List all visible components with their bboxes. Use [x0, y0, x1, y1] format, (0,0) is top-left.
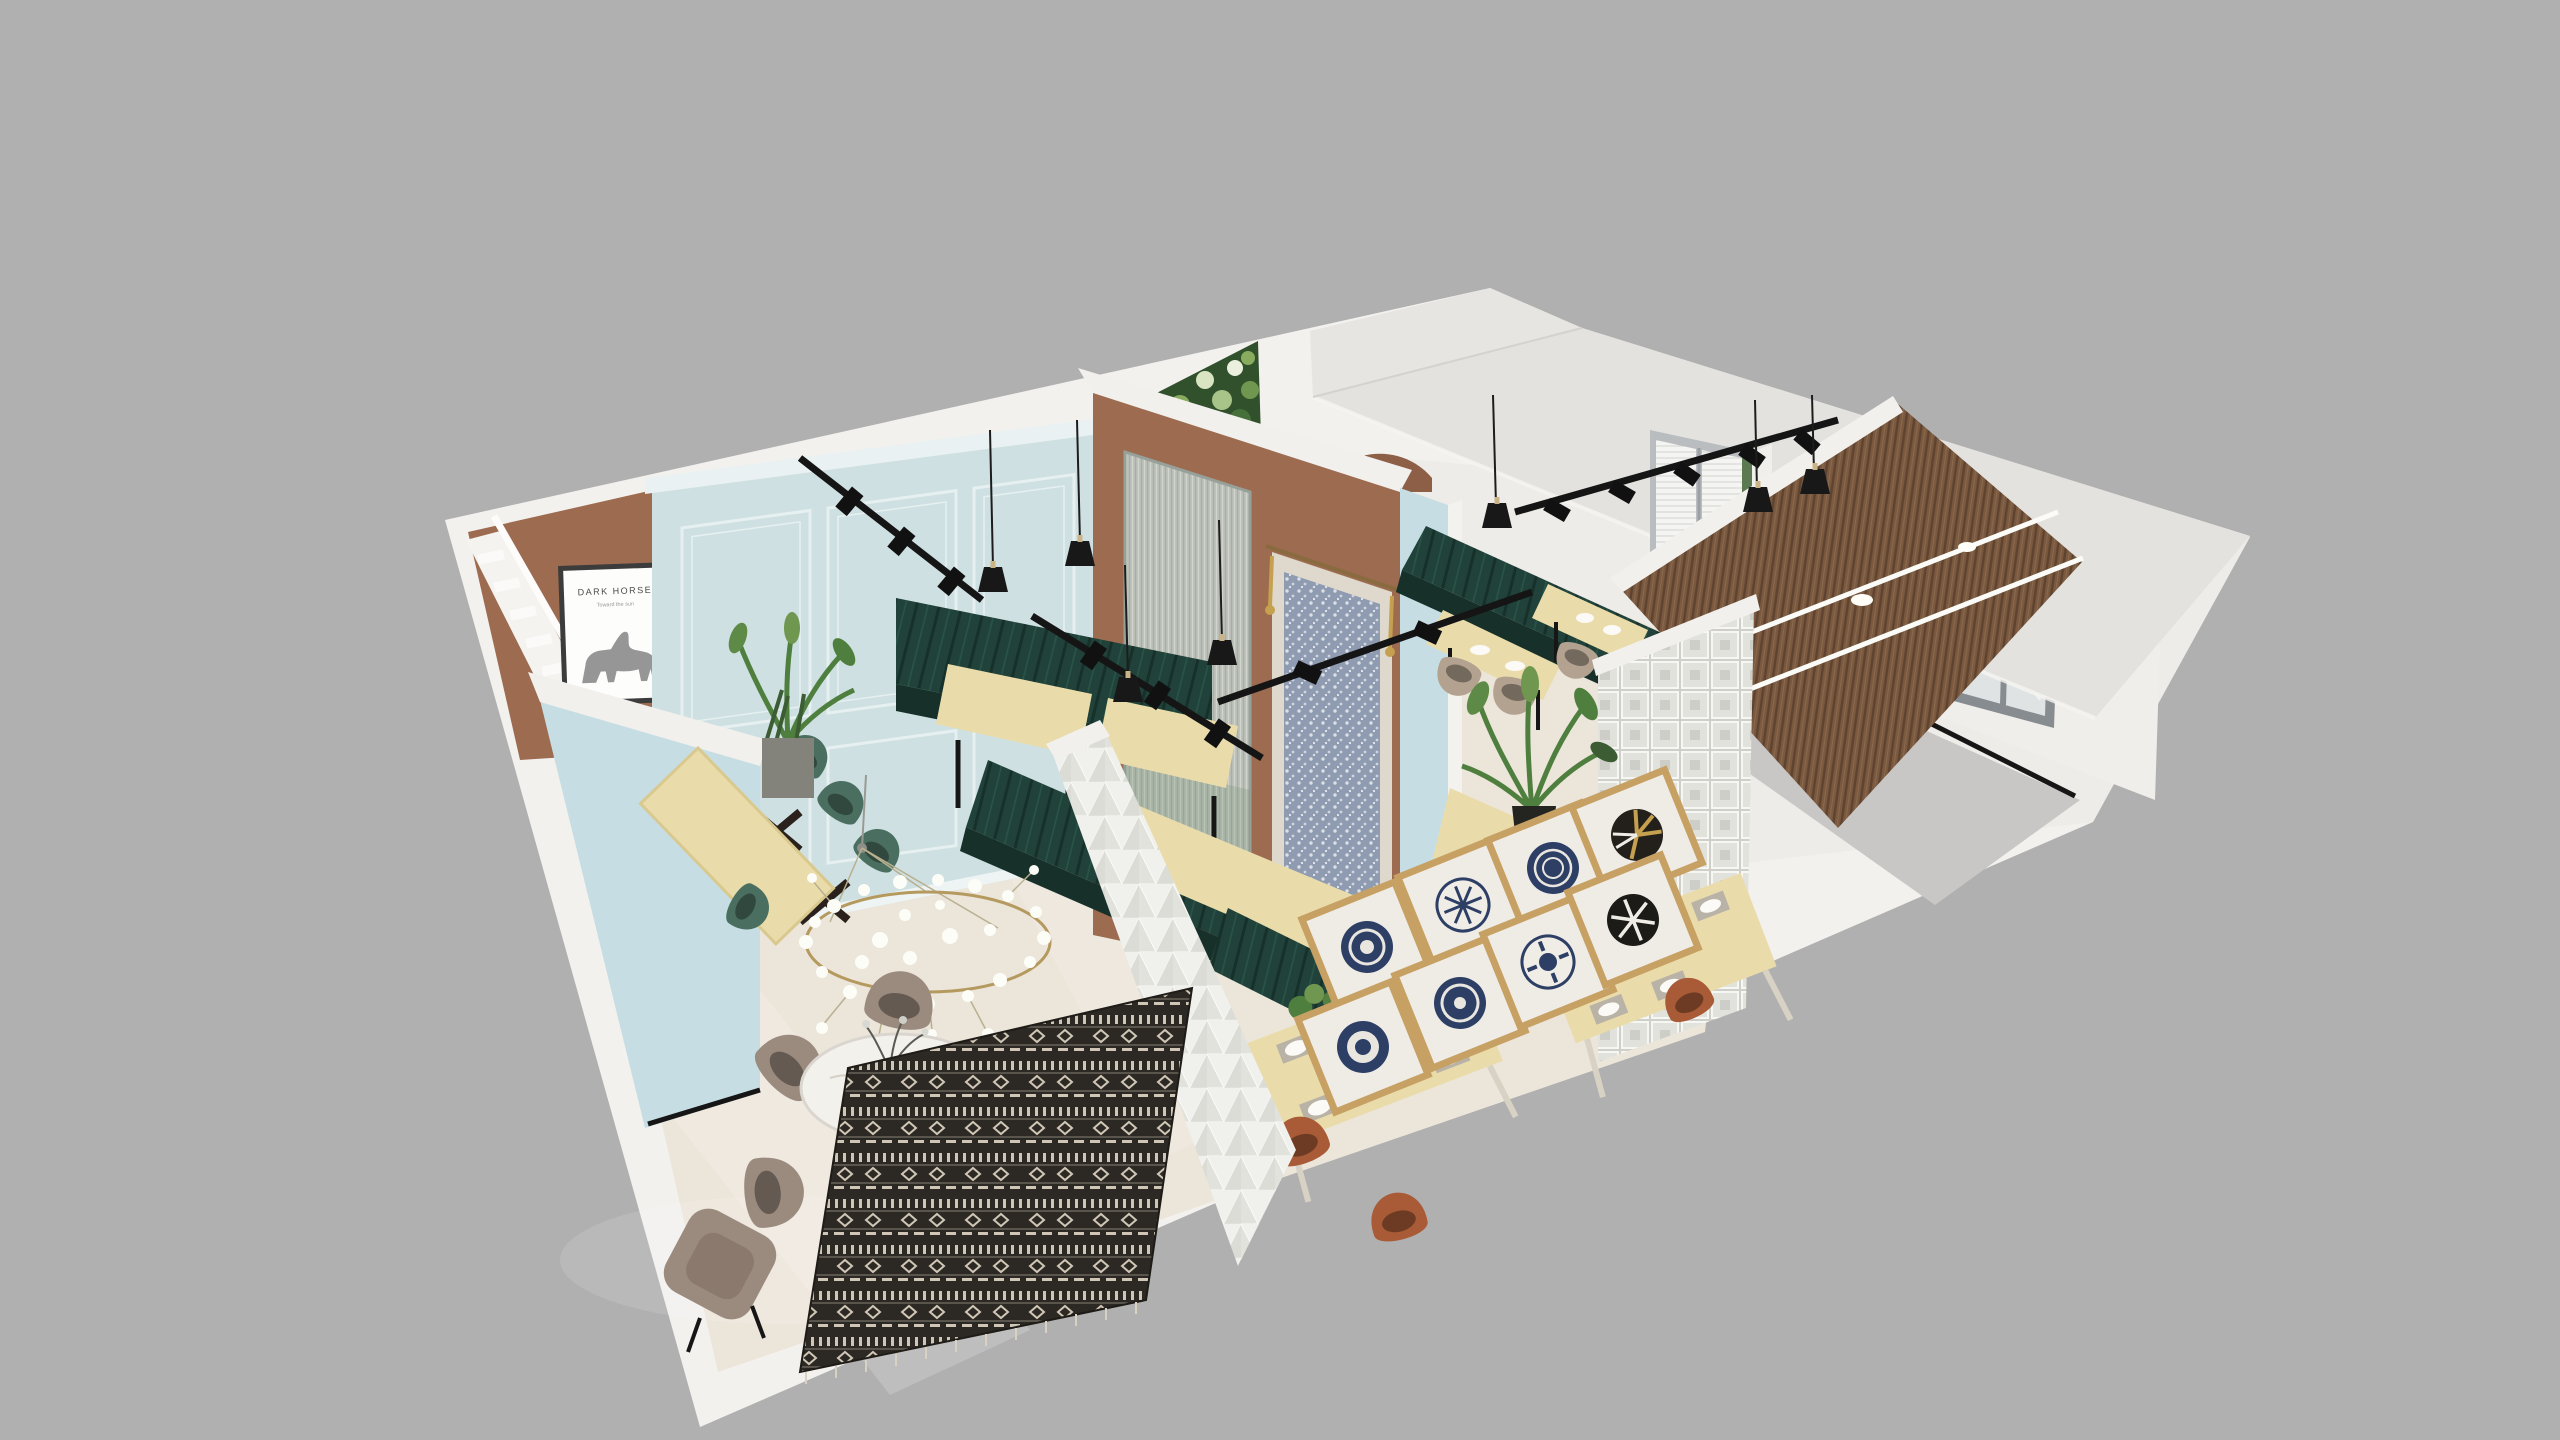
- isometric-scene: DARK HORSE Toward the sun: [0, 0, 2560, 1440]
- downlight: [1958, 542, 1976, 552]
- render-canvas: DARK HORSE Toward the sun: [0, 0, 2560, 1440]
- downlight: [1851, 594, 1873, 606]
- planter-box: [762, 738, 814, 798]
